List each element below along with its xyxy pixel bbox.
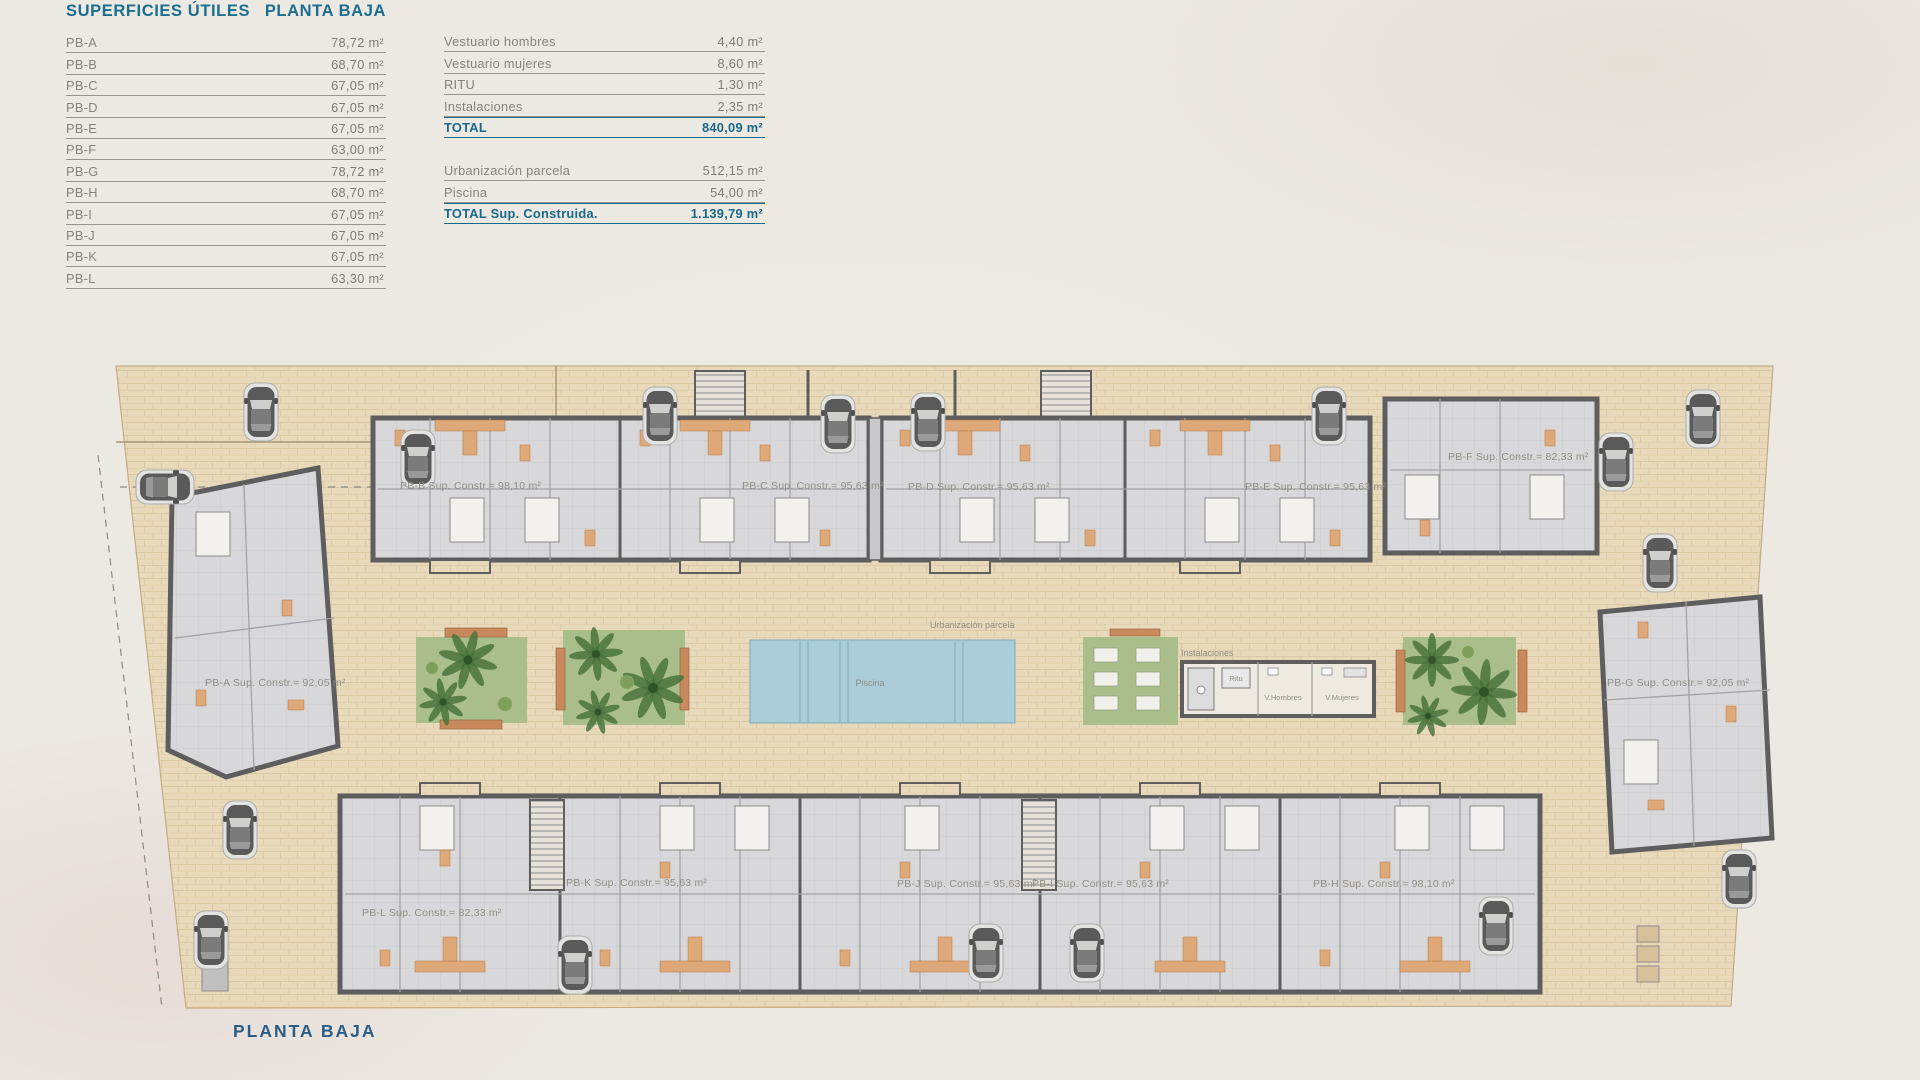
unit-label-pb-g: PB-G Sup. Constr.= 92,05 m² xyxy=(1607,677,1750,689)
car-icon xyxy=(1479,897,1513,955)
garden-center xyxy=(556,616,695,743)
car-icon xyxy=(1686,390,1720,448)
vestuario-mujeres-label: V.Mujeres xyxy=(1325,693,1359,702)
unit-label-pb-h: PB-H Sup. Constr.= 98,10 m² xyxy=(1313,878,1455,890)
floor-plan: Piscina Instalaciones Ritu V.Hombres V.M… xyxy=(0,0,1920,1080)
car-icon xyxy=(643,387,677,445)
car-icon xyxy=(244,383,278,441)
car-icon xyxy=(1070,924,1104,982)
unit-label-pb-b: PB-B Sup. Constr.= 98,10 m² xyxy=(400,480,541,492)
pool-label: Piscina xyxy=(855,678,884,688)
unit-label-pb-e: PB-E Sup. Constr.= 95,63 m² xyxy=(1245,481,1386,493)
ritu-label: Ritu xyxy=(1229,674,1243,683)
palm-tree-icon xyxy=(1405,633,1459,687)
unit-label-pb-i: PB-I Sup. Constr.= 95,63 m² xyxy=(1032,878,1169,890)
unit-label-pb-d: PB-D Sup. Constr.= 95,63 m² xyxy=(908,481,1050,493)
vestuario-hombres-label: V.Hombres xyxy=(1264,693,1301,702)
car-icon xyxy=(821,395,855,453)
car-icon xyxy=(558,936,592,994)
footer-plan-title: PLANTA BAJA xyxy=(233,1021,377,1042)
unit-pb-g xyxy=(1600,597,1772,852)
car-icon xyxy=(1312,387,1346,445)
unit-label-pb-a: PB-A Sup. Constr.= 92,05 m² xyxy=(205,677,346,689)
car-icon xyxy=(1722,850,1756,908)
car-icon xyxy=(223,801,257,859)
urbanizacion-label: Urbanización parcela xyxy=(930,620,1015,630)
garden-left xyxy=(415,623,527,730)
unit-pb-a xyxy=(168,468,338,777)
car-icon xyxy=(969,924,1003,982)
unit-label-pb-l: PB-L Sup. Constr.= 82,33 m² xyxy=(362,907,502,919)
car-icon xyxy=(911,393,945,451)
car-icon xyxy=(1599,433,1633,491)
unit-label-pb-k: PB-K Sup. Constr.= 95,63 m² xyxy=(566,877,707,889)
unit-label-pb-j: PB-J Sup. Constr.= 95,63 m² xyxy=(897,878,1037,890)
car-icon xyxy=(136,470,194,504)
instalaciones-label: Instalaciones xyxy=(1181,648,1234,658)
car-icon xyxy=(194,911,228,969)
unit-label-pb-c: PB-C Sup. Constr.= 95,63 m² xyxy=(742,480,884,492)
solarium xyxy=(1083,629,1178,725)
swimming-pool: Piscina xyxy=(750,640,1015,723)
car-icon xyxy=(1643,534,1677,592)
unit-label-pb-f: PB-F Sup. Constr.= 82,33 m² xyxy=(1448,451,1589,463)
